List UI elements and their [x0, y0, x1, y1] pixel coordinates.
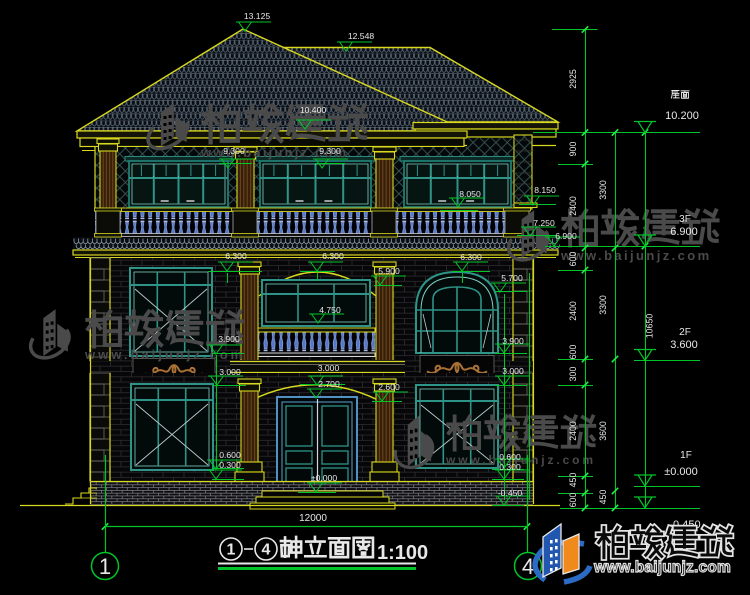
- svg-text:6.900: 6.900: [555, 231, 577, 241]
- svg-text:9.300: 9.300: [319, 146, 341, 156]
- svg-text:12000: 12000: [299, 513, 327, 524]
- svg-text:3F: 3F: [679, 214, 691, 225]
- svg-text:6.900: 6.900: [670, 226, 698, 238]
- svg-text:3.000: 3.000: [219, 367, 241, 377]
- svg-text:10650: 10650: [645, 314, 655, 339]
- svg-text:13.125: 13.125: [244, 11, 271, 21]
- svg-text:6.300: 6.300: [460, 252, 482, 262]
- svg-text:6.300: 6.300: [225, 251, 247, 261]
- svg-text:3.000: 3.000: [502, 366, 524, 376]
- svg-text:450: 450: [568, 473, 578, 488]
- svg-text:4: 4: [522, 554, 534, 579]
- svg-text:3300: 3300: [598, 295, 608, 315]
- svg-text:0.600: 0.600: [219, 450, 241, 460]
- svg-text:5.900: 5.900: [378, 266, 400, 276]
- svg-text:2.600: 2.600: [378, 382, 400, 392]
- svg-text:3.000: 3.000: [318, 363, 340, 373]
- svg-text:3600: 3600: [598, 421, 608, 441]
- svg-text:450: 450: [598, 490, 608, 505]
- svg-text:600: 600: [568, 345, 578, 360]
- svg-text:12.548: 12.548: [348, 31, 375, 41]
- svg-text:±0.000: ±0.000: [664, 466, 698, 478]
- svg-text:1:100: 1:100: [377, 542, 428, 564]
- svg-text:www.baijunjz.com: www.baijunjz.com: [84, 347, 245, 362]
- svg-text:600: 600: [568, 252, 578, 267]
- svg-text:3.600: 3.600: [670, 339, 698, 351]
- svg-text:6.300: 6.300: [322, 251, 344, 261]
- svg-text:5.700: 5.700: [501, 273, 523, 283]
- svg-text:600: 600: [568, 493, 578, 508]
- svg-text:3.900: 3.900: [502, 336, 524, 346]
- svg-text:4.750: 4.750: [319, 305, 341, 315]
- svg-text:3.900: 3.900: [218, 334, 240, 344]
- svg-text:1: 1: [99, 554, 111, 579]
- svg-text:www.baijunjz.com: www.baijunjz.com: [593, 559, 731, 576]
- svg-text:1: 1: [227, 542, 236, 559]
- svg-text:2400: 2400: [568, 196, 578, 216]
- svg-text:3300: 3300: [598, 180, 608, 200]
- svg-text:2F: 2F: [679, 327, 691, 338]
- svg-text:900: 900: [568, 142, 578, 157]
- svg-text:2400: 2400: [568, 301, 578, 321]
- svg-text:0.600: 0.600: [499, 452, 521, 462]
- svg-text:-0.450: -0.450: [498, 488, 523, 498]
- svg-text:1F: 1F: [680, 450, 692, 461]
- svg-text:0.300: 0.300: [219, 460, 241, 470]
- svg-text:2925: 2925: [568, 69, 578, 89]
- svg-text:2.700: 2.700: [318, 379, 340, 389]
- svg-text:0.300: 0.300: [499, 462, 521, 472]
- svg-text:9.300: 9.300: [223, 146, 245, 156]
- svg-text:8.150: 8.150: [534, 185, 556, 195]
- svg-text:8.050: 8.050: [459, 189, 481, 199]
- svg-text:4: 4: [262, 542, 271, 559]
- svg-text:2400: 2400: [568, 421, 578, 441]
- svg-text:7.250: 7.250: [533, 218, 555, 228]
- svg-text:10.400: 10.400: [300, 105, 327, 115]
- svg-text:300: 300: [568, 367, 578, 382]
- svg-text:±0.000: ±0.000: [311, 473, 337, 483]
- svg-text:10.200: 10.200: [665, 110, 699, 122]
